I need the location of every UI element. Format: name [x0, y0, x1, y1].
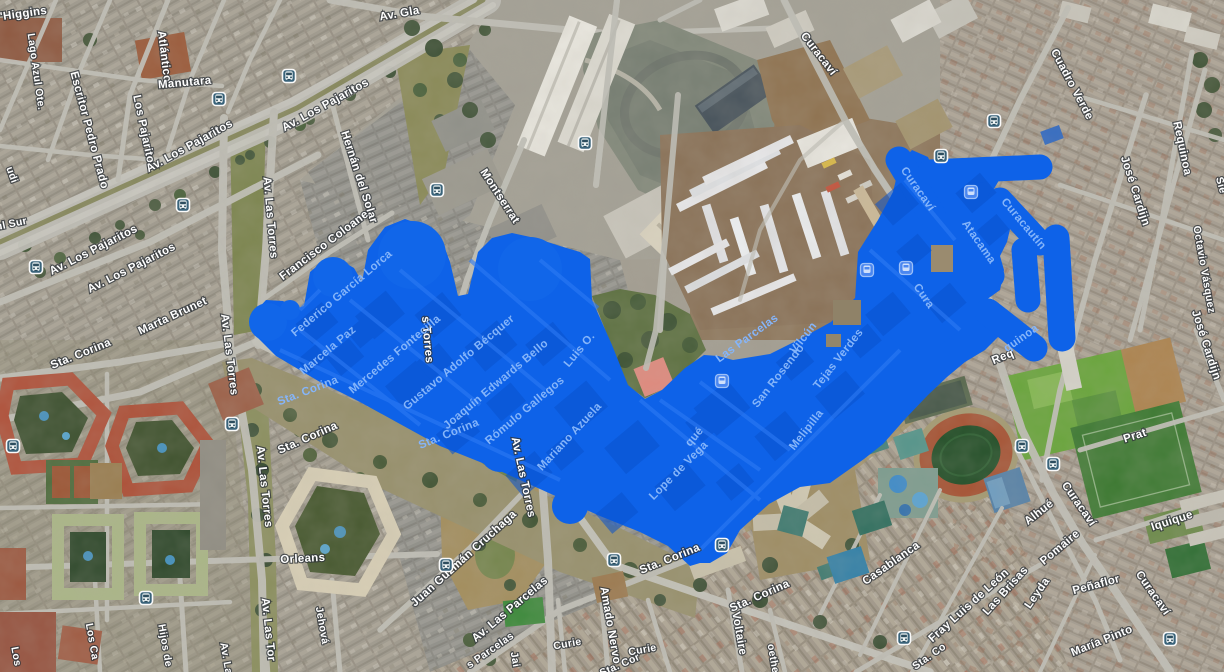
- svg-text:Orleans: Orleans: [280, 552, 326, 566]
